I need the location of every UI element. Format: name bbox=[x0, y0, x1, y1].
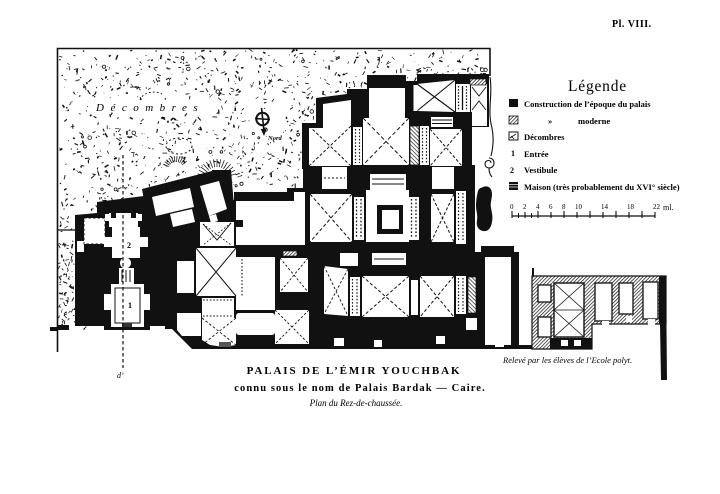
svg-text:PALAIS DE L’ÉMIR YOUCHBAK: PALAIS DE L’ÉMIR YOUCHBAK bbox=[247, 365, 462, 377]
svg-text:14: 14 bbox=[601, 203, 609, 211]
svg-text:1: 1 bbox=[128, 301, 132, 310]
svg-text:2: 2 bbox=[127, 241, 131, 250]
svg-text:Décombres: Décombres bbox=[95, 102, 204, 114]
svg-text:10: 10 bbox=[575, 203, 583, 211]
svg-text:Plan du Rez-de-chaussée.: Plan du Rez-de-chaussée. bbox=[309, 398, 403, 408]
svg-text:8: 8 bbox=[562, 203, 566, 211]
svg-text:Décombres: Décombres bbox=[524, 132, 565, 142]
svg-text:connu sous le nom de Palais Ba: connu sous le nom de Palais Bardak — Cai… bbox=[234, 383, 486, 394]
svg-text:2: 2 bbox=[510, 166, 514, 175]
svg-text:Pl. VIII.: Pl. VIII. bbox=[612, 19, 652, 30]
svg-text:Maison (très probablement du X: Maison (très probablement du XVI° siècle… bbox=[524, 182, 680, 192]
svg-text:0: 0 bbox=[510, 203, 514, 211]
svg-text:Construction de l’époque du pa: Construction de l’époque du palais bbox=[524, 99, 651, 109]
svg-text:d’: d’ bbox=[117, 371, 124, 380]
svg-text:Nord: Nord bbox=[267, 135, 282, 142]
svg-text:Légende: Légende bbox=[568, 78, 627, 95]
svg-text:Vestibule: Vestibule bbox=[524, 165, 557, 175]
svg-text:6: 6 bbox=[549, 203, 553, 211]
svg-text:2: 2 bbox=[523, 203, 527, 211]
svg-text:moderne: moderne bbox=[578, 116, 610, 126]
svg-text:4: 4 bbox=[536, 203, 540, 211]
svg-text:ml.: ml. bbox=[663, 203, 673, 212]
svg-text:Entrée: Entrée bbox=[524, 149, 549, 159]
svg-text:22: 22 bbox=[653, 203, 661, 211]
svg-text:1: 1 bbox=[511, 149, 515, 158]
svg-text:Relevé par les élèves de l’Eco: Relevé par les élèves de l’Ecole polyt. bbox=[502, 355, 632, 365]
svg-text:18: 18 bbox=[627, 203, 635, 211]
svg-text:»: » bbox=[548, 116, 552, 126]
